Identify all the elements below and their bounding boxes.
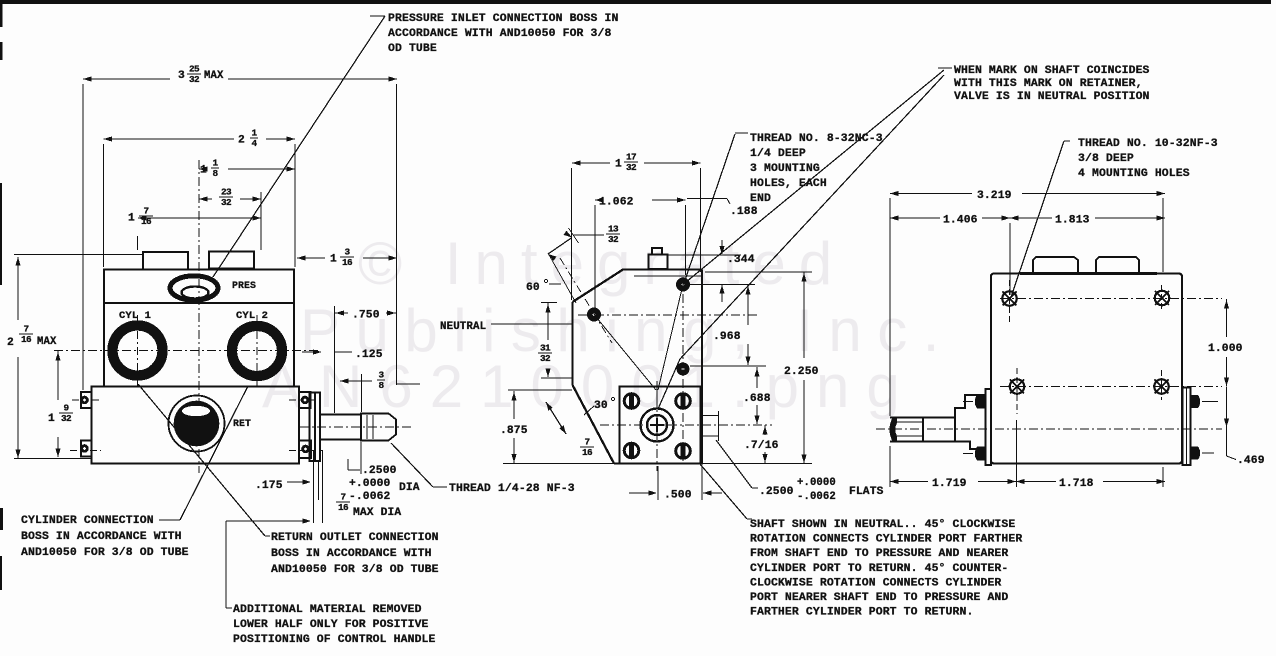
svg-text:.968: .968 <box>713 331 741 343</box>
svg-text:OD TUBE: OD TUBE <box>388 42 437 55</box>
svg-text:1: 1 <box>615 159 622 171</box>
svg-text:.344: .344 <box>727 254 755 266</box>
svg-text:AND10050 FOR 3/8 OD TUBE: AND10050 FOR 3/8 OD TUBE <box>271 563 439 576</box>
svg-text:16: 16 <box>141 216 152 227</box>
svg-text:MAX: MAX <box>37 336 57 348</box>
svg-text:60: 60 <box>526 282 540 294</box>
svg-text:SHAFT SHOWN IN NEUTRAL.. 45° C: SHAFT SHOWN IN NEUTRAL.. 45° CLOCKWISE <box>750 518 1015 531</box>
svg-text:32: 32 <box>540 353 551 364</box>
svg-text:CYLINDER CONNECTION: CYLINDER CONNECTION <box>21 514 154 527</box>
svg-text:.750: .750 <box>352 310 380 322</box>
svg-text:FROM SHAFT END TO PRESSURE AND: FROM SHAFT END TO PRESSURE AND NEARER <box>750 547 1008 560</box>
svg-text:.688: .688 <box>743 393 771 405</box>
svg-text:AND10050 FOR 3/8 OD TUBE: AND10050 FOR 3/8 OD TUBE <box>21 546 189 559</box>
svg-text:END: END <box>750 192 771 205</box>
svg-text:FLATS: FLATS <box>849 486 884 498</box>
svg-text:1: 1 <box>48 413 55 425</box>
svg-text:NEUTRAL: NEUTRAL <box>440 321 486 333</box>
svg-text:THREAD NO. 10-32NF-3: THREAD NO. 10-32NF-3 <box>1078 137 1218 150</box>
svg-text:THREAD 1/4-28 NF-3: THREAD 1/4-28 NF-3 <box>449 482 575 495</box>
svg-text:CYL 2: CYL 2 <box>236 310 268 322</box>
svg-text:CLOCKWISE ROTATION CONNECTS CY: CLOCKWISE ROTATION CONNECTS CYLINDER <box>750 576 1001 589</box>
svg-text:3/8 DEEP: 3/8 DEEP <box>1078 152 1134 165</box>
svg-text:.125: .125 <box>355 349 383 361</box>
svg-text:-.0062: -.0062 <box>349 491 390 503</box>
svg-text:PRES: PRES <box>232 280 256 291</box>
svg-text:32: 32 <box>608 234 619 245</box>
svg-text:16: 16 <box>21 334 32 345</box>
svg-text:7: 7 <box>143 205 148 216</box>
svg-text:ADDITIONAL MATERIAL REMOVED: ADDITIONAL MATERIAL REMOVED <box>233 603 422 616</box>
svg-text:.500: .500 <box>664 490 692 502</box>
svg-text:FARTHER CYLINDER PORT TO RETUR: FARTHER CYLINDER PORT TO RETURN. <box>750 606 973 619</box>
svg-text:16: 16 <box>338 502 349 513</box>
svg-text:32: 32 <box>189 74 200 85</box>
svg-text:LOWER HALF ONLY FOR POSITIVE: LOWER HALF ONLY FOR POSITIVE <box>233 618 429 631</box>
svg-text:7: 7 <box>340 491 345 502</box>
svg-text:32: 32 <box>61 413 72 424</box>
svg-text:13: 13 <box>608 223 619 234</box>
svg-text:+.0000: +.0000 <box>349 478 390 490</box>
svg-text:1.719: 1.719 <box>932 478 967 490</box>
svg-text:VALVE IS IN NEUTRAL POSITION: VALVE IS IN NEUTRAL POSITION <box>954 90 1150 103</box>
svg-text:1: 1 <box>330 254 337 266</box>
svg-text:DIA: DIA <box>399 482 420 494</box>
svg-text:MAX DIA: MAX DIA <box>353 507 401 519</box>
svg-text:3 MOUNTING: 3 MOUNTING <box>750 162 820 175</box>
svg-text:.469: .469 <box>1237 455 1265 467</box>
svg-text:.2500: .2500 <box>759 486 794 498</box>
svg-text:3.219: 3.219 <box>977 190 1012 202</box>
svg-text:16: 16 <box>342 257 353 268</box>
svg-text:CYLINDER PORT TO RETURN. 45°: CYLINDER PORT TO RETURN. 45° COUNTER- <box>750 562 1008 575</box>
svg-text:HOLES, EACH: HOLES, EACH <box>750 177 827 190</box>
svg-text:1.062: 1.062 <box>599 197 634 209</box>
svg-text:POSITIONING OF CONTROL HANDLE: POSITIONING OF CONTROL HANDLE <box>233 633 436 646</box>
svg-text:RET: RET <box>233 418 251 429</box>
svg-text:THREAD NO. 8-32NC-3: THREAD NO. 8-32NC-3 <box>750 132 883 145</box>
svg-text:PRESSURE INLET CONNECTION BOSS: PRESSURE INLET CONNECTION BOSS IN <box>388 12 618 25</box>
svg-text:17: 17 <box>626 151 636 162</box>
svg-text:7: 7 <box>23 323 28 334</box>
svg-text:WHEN MARK ON SHAFT COINCIDES: WHEN MARK ON SHAFT COINCIDES <box>954 64 1150 77</box>
svg-text:30: 30 <box>594 400 608 412</box>
svg-text:16: 16 <box>582 447 593 458</box>
svg-text:3: 3 <box>178 70 185 82</box>
svg-text:1.718: 1.718 <box>1059 478 1094 490</box>
svg-text:© Integrated: © Integrated <box>358 230 845 297</box>
svg-text:23: 23 <box>221 186 232 197</box>
svg-text:MAX: MAX <box>204 70 224 82</box>
svg-text:BOSS IN ACCORDANCE WITH: BOSS IN ACCORDANCE WITH <box>271 547 432 560</box>
svg-text:.188: .188 <box>730 206 758 218</box>
svg-text:BOSS IN ACCORDANCE WITH: BOSS IN ACCORDANCE WITH <box>21 530 182 543</box>
svg-text:32: 32 <box>221 197 232 208</box>
svg-text:CYL 1: CYL 1 <box>119 310 151 322</box>
svg-text:31: 31 <box>540 342 551 353</box>
svg-text:1: 1 <box>200 165 207 177</box>
svg-text:.875: .875 <box>500 425 528 437</box>
svg-text:PORT NEARER SHAFT END TO PRESS: PORT NEARER SHAFT END TO PRESSURE AND <box>750 591 1008 604</box>
svg-text:WITH THIS MARK ON RETAINER,: WITH THIS MARK ON RETAINER, <box>954 77 1143 90</box>
svg-text:1/4 DEEP: 1/4 DEEP <box>750 147 806 160</box>
svg-text:.175: .175 <box>255 480 283 492</box>
svg-text:1.813: 1.813 <box>1055 215 1090 227</box>
svg-text:7: 7 <box>584 436 589 447</box>
svg-text:.2500: .2500 <box>362 465 397 477</box>
svg-text:.7/16: .7/16 <box>744 440 779 452</box>
svg-text:2.250: 2.250 <box>784 366 819 378</box>
svg-text:2: 2 <box>7 337 14 349</box>
svg-text:1.406: 1.406 <box>943 215 978 227</box>
svg-text:32: 32 <box>626 162 637 173</box>
svg-text:RETURN OUTLET CONNECTION: RETURN OUTLET CONNECTION <box>271 531 439 544</box>
svg-text:4 MOUNTING HOLES: 4 MOUNTING HOLES <box>1078 167 1190 180</box>
svg-text:+.0000: +.0000 <box>797 477 836 489</box>
svg-text:ACCORDANCE WITH AND10050 FOR 3: ACCORDANCE WITH AND10050 FOR 3/8 <box>388 27 611 40</box>
svg-text:ROTATION CONNECTS CYLINDER POR: ROTATION CONNECTS CYLINDER PORT FARTHER <box>750 533 1022 546</box>
svg-text:1: 1 <box>128 213 135 225</box>
svg-text:25: 25 <box>189 63 200 74</box>
svg-text:1.000: 1.000 <box>1208 343 1243 355</box>
svg-text:2: 2 <box>238 135 245 147</box>
svg-text:-.0062: -.0062 <box>797 491 836 503</box>
